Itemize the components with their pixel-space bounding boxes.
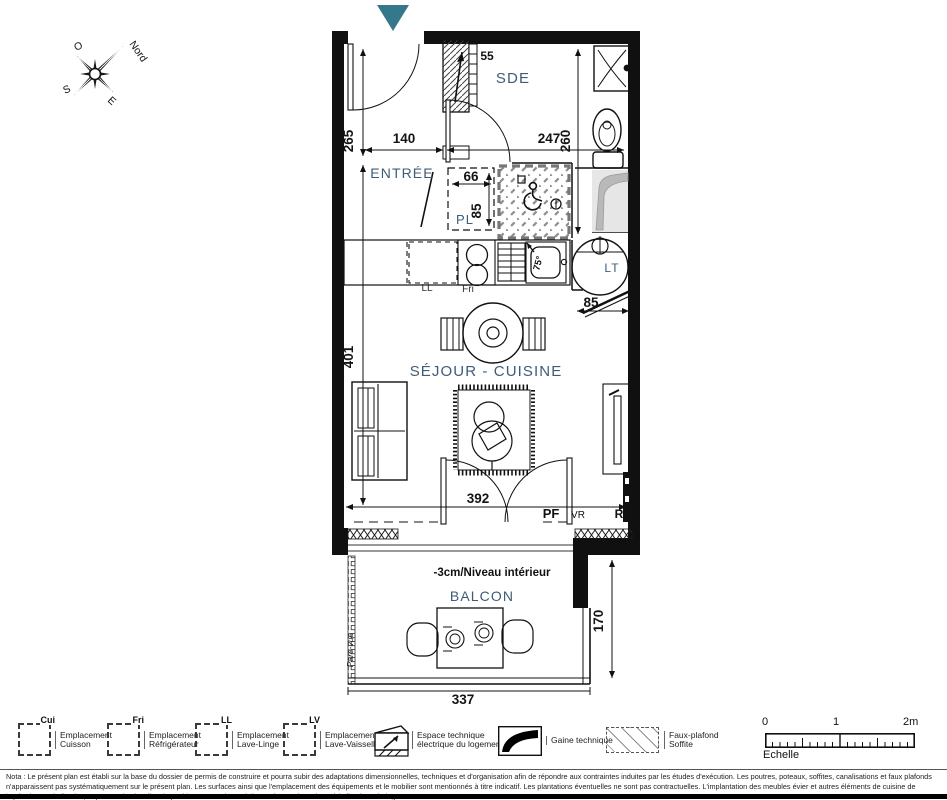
dishwasher: [498, 243, 525, 281]
scale-label: Echelle: [763, 749, 799, 761]
washbasin: [594, 46, 630, 91]
floor-plan-drawing: Nord O S E: [0, 0, 947, 715]
sink: [526, 242, 567, 283]
toilet: [593, 109, 623, 168]
compass-east-label: E: [105, 94, 118, 108]
entry-door: [348, 44, 419, 110]
scale-1: 1: [833, 716, 839, 728]
dim-337: 337: [452, 692, 475, 707]
scale-0: 0: [762, 716, 768, 728]
legend-text-electrical: Espace techniqueélectrique du logement: [412, 731, 503, 749]
gaine-technique: [592, 170, 628, 232]
dim-66: 66: [463, 169, 479, 184]
vr-label: VR: [571, 510, 585, 521]
balcony-chair-right: [502, 620, 533, 653]
legend-symbol-electrical-icon: [374, 725, 409, 757]
niveau-note: -3cm/Niveau intérieur: [434, 567, 551, 579]
sink-angle-label: 75°: [531, 255, 545, 272]
dim-260: 260: [558, 130, 573, 153]
compass-rose: Nord O S E: [61, 39, 149, 108]
dim-85-door: 85: [583, 295, 599, 310]
legend-text-faux-plafond: Faux-plafondSoffite: [664, 731, 719, 749]
r-label: R: [615, 507, 624, 521]
fridge-zone: [409, 242, 457, 283]
dining-table: [441, 303, 545, 363]
room-label-sejour-cuisine: SÉJOUR - CUISINE: [410, 363, 563, 380]
shower: [499, 166, 569, 238]
rug-and-armchair: [455, 387, 533, 473]
hatched-wall-strips: [348, 529, 633, 539]
exterior-walls: [332, 31, 640, 608]
legend-symbol-lave-vaisselle: LV: [283, 723, 316, 756]
dim-265: 265: [341, 129, 356, 152]
room-label-balcon: BALCON: [450, 588, 514, 604]
room-label-sde: SDE: [496, 70, 530, 87]
legend-tag-ll: LL: [220, 716, 233, 725]
room-label-entree: ENTRÉE: [370, 165, 433, 181]
legend-text-lave-linge: EmplacementLave-Linge: [232, 731, 289, 749]
pare-vue-note: Pare-vue: [345, 632, 355, 667]
balcony-table: [437, 608, 503, 668]
balcony-chair-left: [407, 623, 438, 656]
legend-text-cuisson: EmplacementCuisson: [55, 731, 112, 749]
radiator: [623, 472, 631, 522]
compass-north-label: Nord: [127, 39, 150, 65]
dim-85-pl: 85: [469, 203, 484, 219]
elec-dim-label: 55: [480, 49, 494, 63]
legend-tag-fri: Fri: [131, 716, 145, 725]
legend-symbol-refrigerateur: Fri: [107, 723, 140, 756]
scale-2m: 2m: [903, 716, 918, 728]
nota-divider: [0, 769, 947, 770]
legend-text-gaine: Gaine technique: [546, 736, 613, 745]
dim-170: 170: [591, 610, 606, 633]
floor-plan-page: Nord O S E: [0, 0, 947, 800]
french-door: [354, 458, 572, 524]
dim-140: 140: [393, 131, 416, 146]
legend-symbol-gaine-icon: [498, 726, 542, 756]
fixture-label-lt: LT: [604, 261, 619, 275]
pf-label: PF: [543, 506, 560, 521]
footer-bar: [0, 794, 947, 799]
scale-ruler-icon: [765, 733, 915, 748]
dim-392: 392: [467, 491, 490, 506]
entrance-marker-icon: [377, 5, 409, 31]
sill-lines: [348, 545, 573, 551]
legend-text-lave-vaisselle: EmplacementLave-Vaisselle: [320, 731, 380, 749]
legend-symbol-cuisson: Cui: [18, 723, 51, 756]
hob: [458, 240, 495, 286]
fixture-label-fri: Fri: [462, 284, 474, 295]
tv-console: [603, 384, 630, 474]
compass-south-label: S: [61, 83, 72, 97]
dim-401: 401: [341, 345, 356, 368]
compass-west-label: O: [72, 39, 84, 53]
dim-247: 247: [538, 131, 561, 146]
legend-text-refrigerateur: EmplacementRéfrigérateur: [144, 731, 201, 749]
legend-symbol-faux-plafond: [606, 727, 659, 753]
legend-tag-lv: LV: [308, 716, 321, 725]
sofa: [352, 382, 407, 480]
legend-symbol-lave-linge: LL: [195, 723, 228, 756]
fixture-label-ll: LL: [421, 283, 433, 294]
legend-tag-cui: Cui: [40, 716, 57, 725]
